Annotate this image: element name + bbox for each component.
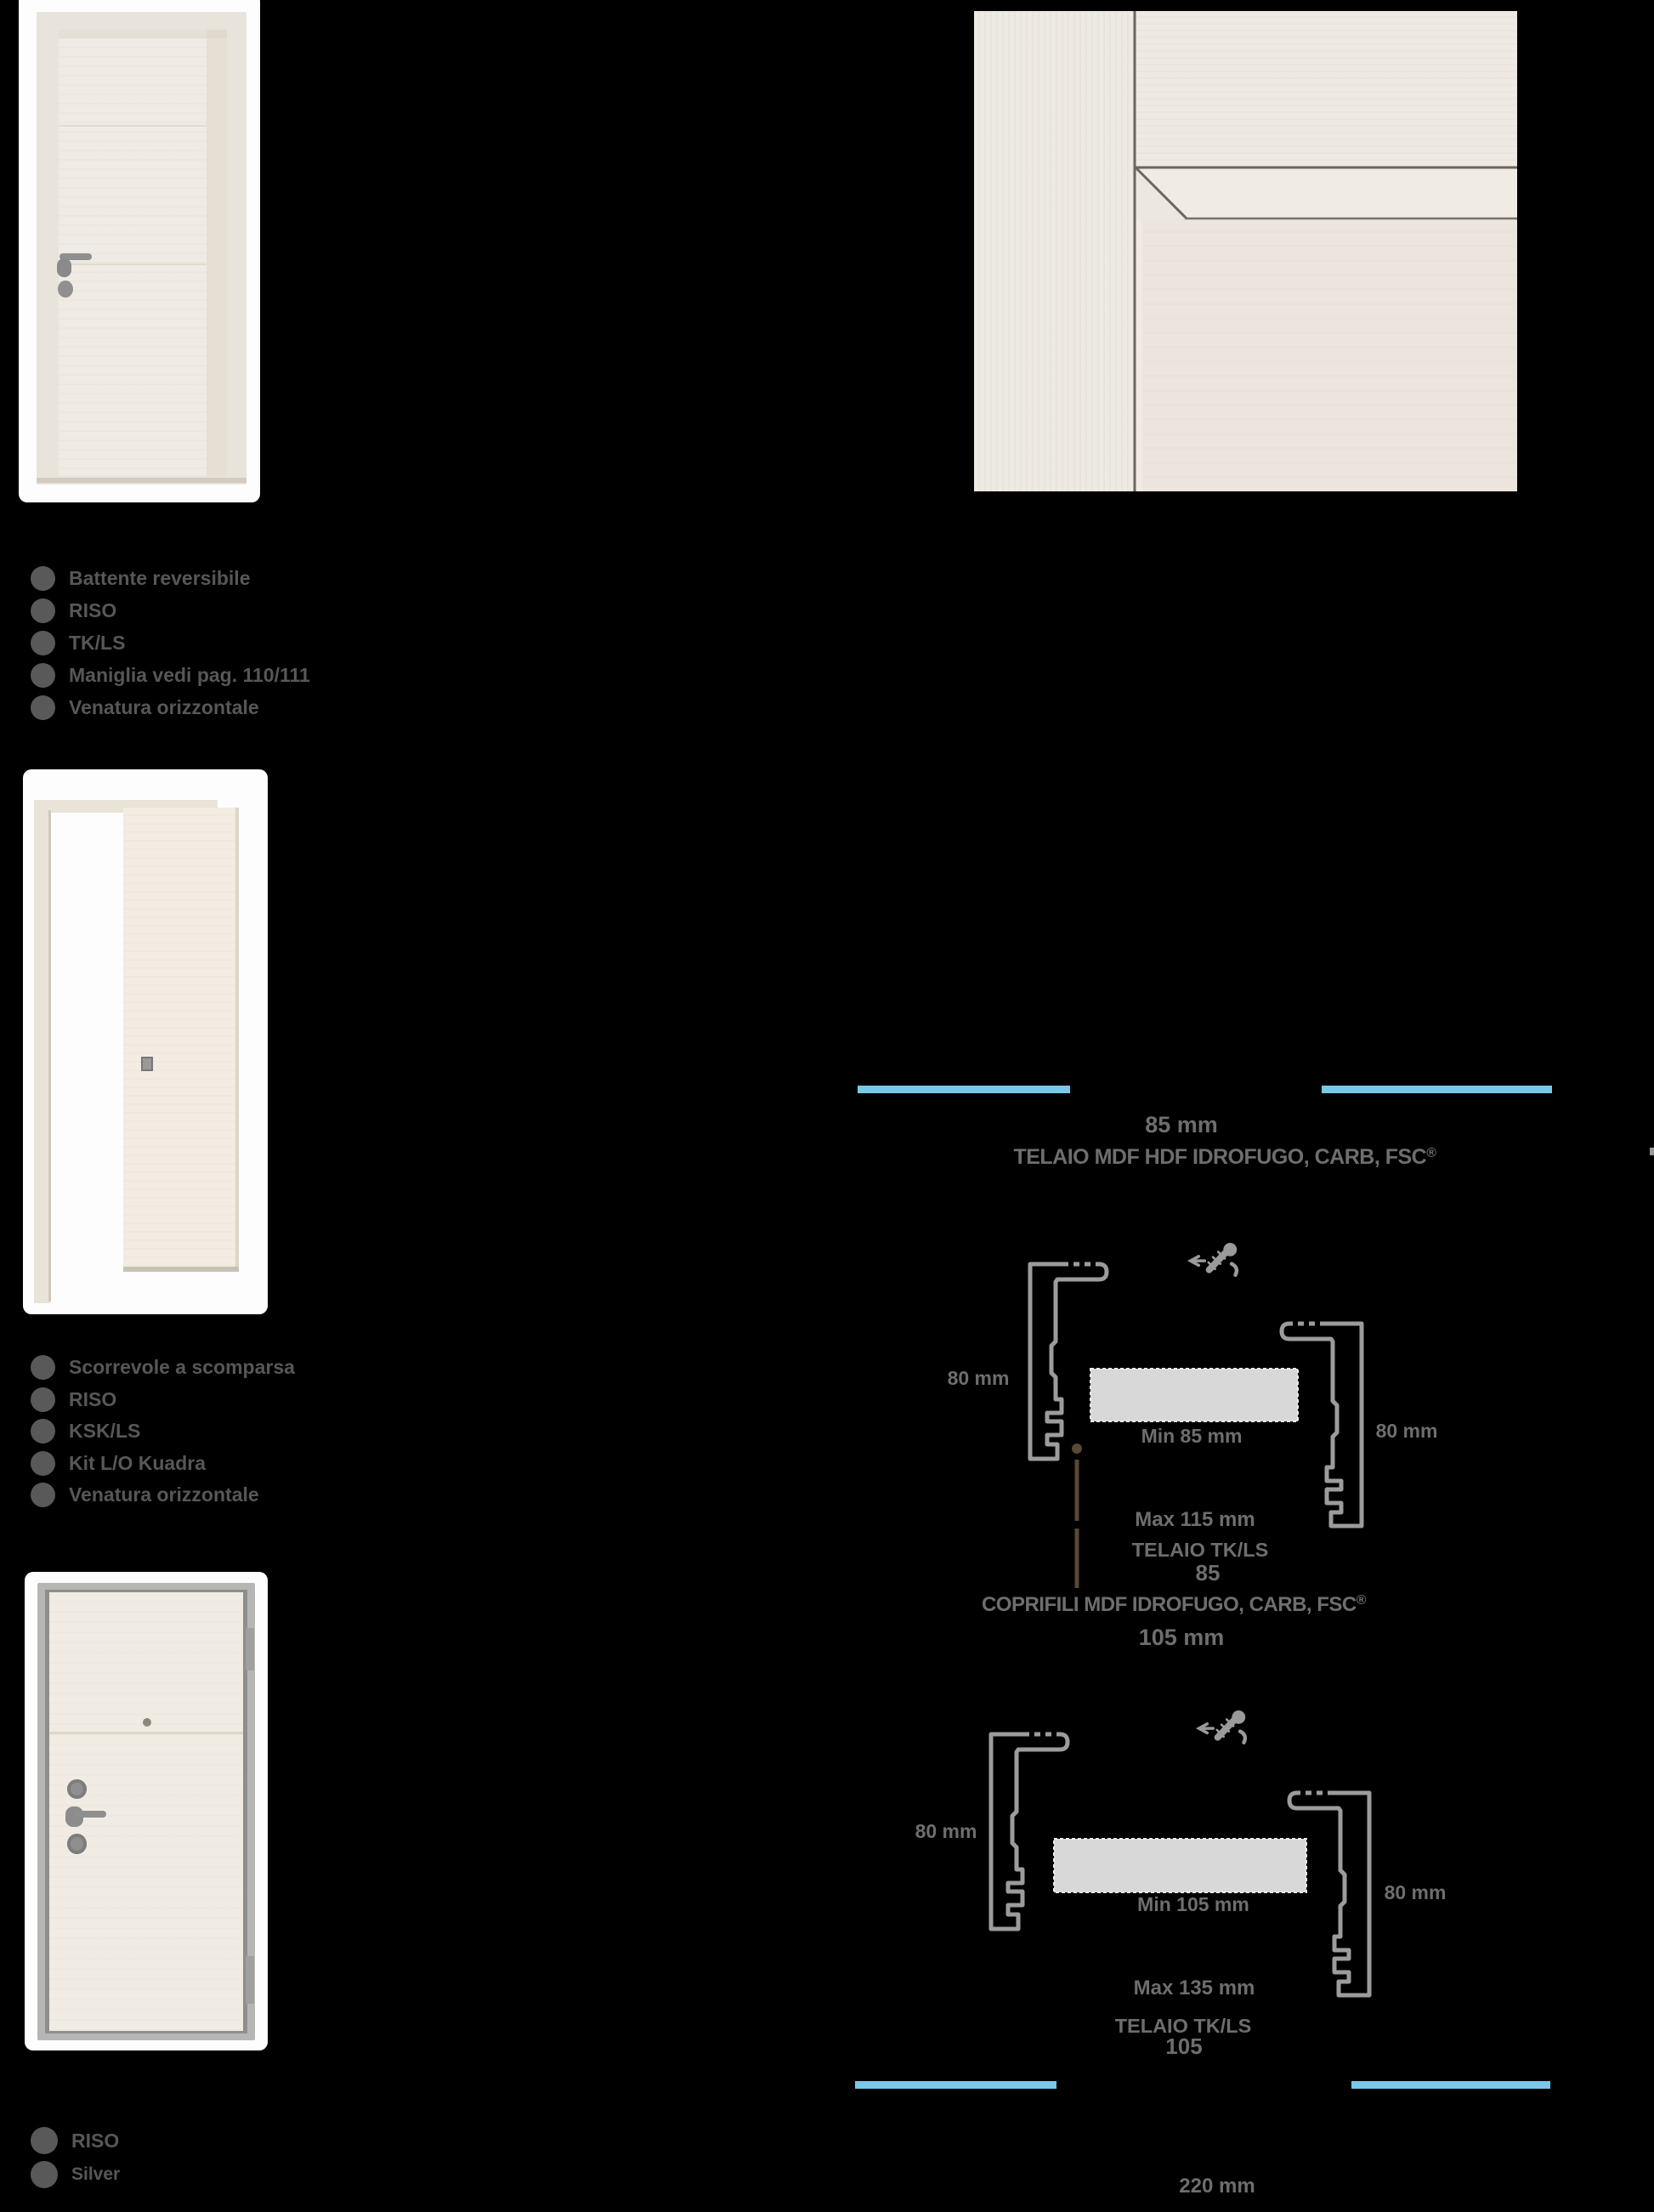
svg-text:105: 105 (1165, 2033, 1202, 2059)
svg-text:80 mm: 80 mm (1385, 1881, 1447, 1903)
svg-text:85: 85 (1196, 1560, 1221, 1585)
svg-text:220 mm: 220 mm (1179, 2175, 1255, 2198)
svg-text:80 mm: 80 mm (1376, 1420, 1438, 1442)
svg-text:Max 115 mm: Max 115 mm (1135, 1508, 1255, 1531)
svg-text:TELAIO TK/LS: TELAIO TK/LS (1132, 1539, 1269, 1561)
svg-text:85 mm: 85 mm (1145, 1112, 1218, 1137)
svg-text:TELAIO MDF HDF IDROFUGO, CARB,: TELAIO MDF HDF IDROFUGO, CARB, FSC® (1013, 1145, 1436, 1169)
svg-text:105 mm: 105 mm (1139, 1625, 1225, 1650)
svg-text:80 mm: 80 mm (915, 1820, 977, 1842)
svg-text:Min 85 mm: Min 85 mm (1141, 1425, 1243, 1447)
svg-text:80 mm: 80 mm (948, 1367, 1010, 1389)
svg-text:Min 105 mm: Min 105 mm (1137, 1893, 1249, 1915)
svg-text:Max 135 mm: Max 135 mm (1134, 1977, 1255, 1999)
svg-text:COPRIFILI MDF IDROFUGO, CARB,: COPRIFILI MDF IDROFUGO, CARB, FSC® (982, 1593, 1367, 1616)
